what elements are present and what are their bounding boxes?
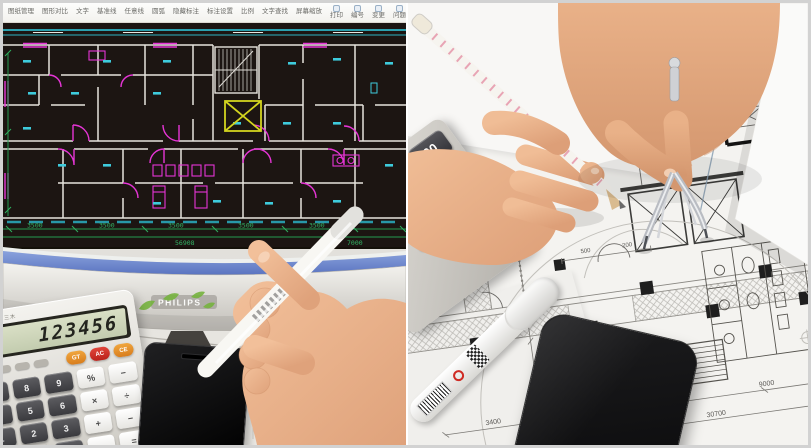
- photo-right-blueprints: 3400 9000 30700 500 200 0 00 1 2 4 5: [406, 3, 808, 445]
- pencil-graphite: [619, 200, 626, 209]
- left-thumb: [494, 123, 558, 143]
- thumb: [255, 347, 303, 363]
- photo-left-cad-monitor: 图纸管理 图形对比 文字 基准线 任意线 圆弧 隐藏标注 标注设置 比例 文字查…: [3, 3, 406, 445]
- compass-handle: [670, 67, 679, 101]
- pointing-hand: [3, 3, 406, 445]
- hands-with-tools: [408, 3, 808, 445]
- compass-lead: [705, 229, 707, 238]
- drafting-compass: [669, 58, 680, 102]
- photo-collage: 图纸管理 图形对比 文字 基准线 任意线 圆弧 隐藏标注 标注设置 比例 文字查…: [0, 0, 811, 448]
